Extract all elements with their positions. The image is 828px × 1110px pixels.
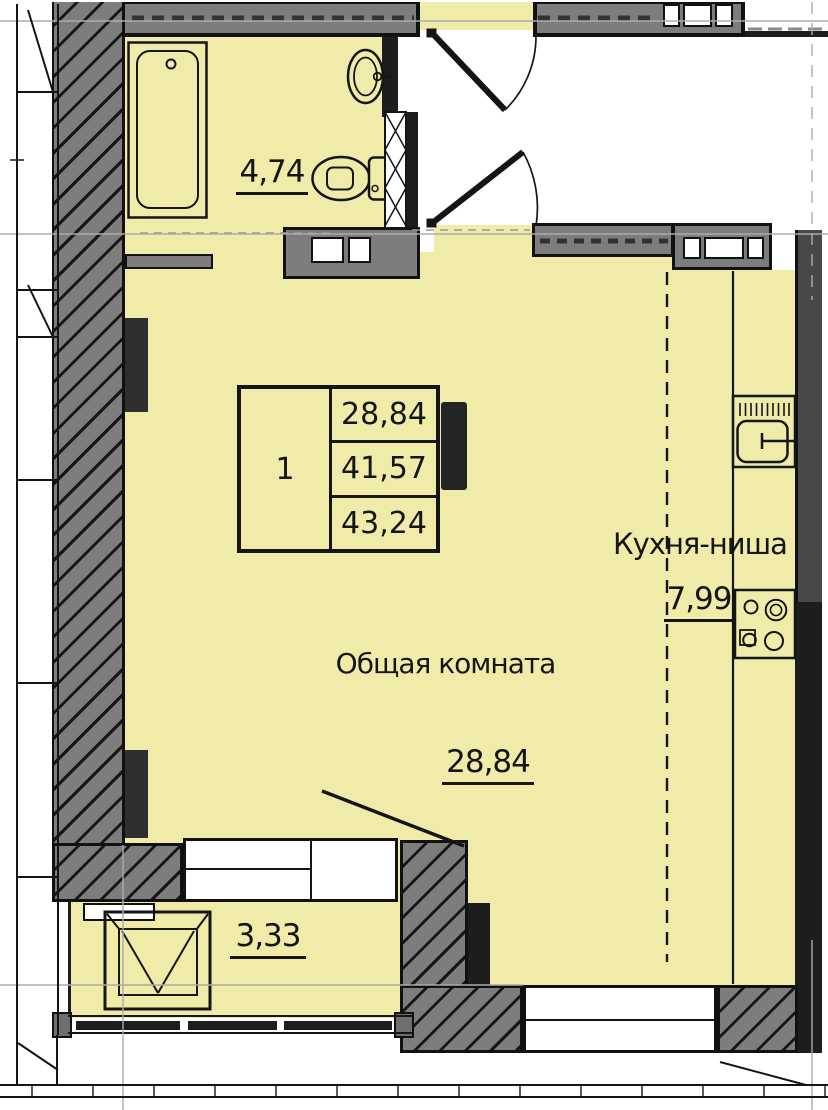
living-room-area-label: 28,84: [442, 746, 534, 785]
wall-window-block: [704, 237, 744, 259]
wall-corridor-bottom: [532, 223, 674, 257]
wall-top-window-block: [683, 4, 712, 27]
loggia-glazing-segment: [188, 1021, 277, 1030]
wall-top-left: [118, 2, 420, 37]
apartment-areas: 28,84 41,57 43,24: [332, 389, 436, 549]
loggia-glazing-segment: [76, 1021, 180, 1030]
apartment-number: 1: [241, 389, 332, 549]
radiator: [125, 318, 148, 412]
loggia-glazing-cap: [394, 1012, 414, 1038]
loggia-sill: [83, 903, 155, 921]
shaft-window-block: [311, 237, 344, 263]
kitchen-window: [523, 985, 717, 1053]
wardrobe-column: [441, 402, 467, 490]
floor-plan: 1 28,84 41,57 43,24 4,74 Кухня-ниша 7,99…: [0, 0, 828, 1110]
wall-kitchen-window-right-pier: [717, 985, 798, 1053]
wall-loggia-top: [52, 843, 183, 902]
wall-top-window-block: [663, 4, 680, 27]
loggia-glazing-segment: [284, 1021, 392, 1030]
wall-kitchen-window-left-pier: [400, 985, 523, 1053]
bathroom-area-label: 4,74: [236, 156, 308, 195]
living-area-value: 28,84: [332, 389, 436, 443]
loggia-left-edge: [68, 902, 71, 1018]
wall-top-right-edge: [745, 31, 828, 37]
balcony-door-window-unit: [183, 838, 398, 902]
wall-left-exterior: [52, 2, 125, 902]
total-area-value: 43,24: [332, 498, 436, 549]
wall-right-lower: [795, 602, 822, 1053]
loggia-area-label: 3,33: [230, 920, 306, 959]
wall-window-block: [683, 237, 701, 259]
apartment-area-value: 41,57: [332, 443, 436, 497]
wall-top-window-block: [715, 4, 733, 27]
wall-pier-dark: [468, 903, 490, 988]
kitchen-name-label: Кухня-ниша: [600, 529, 800, 559]
radiator: [125, 750, 148, 838]
apartment-info-table: 1 28,84 41,57 43,24: [237, 385, 440, 553]
upper-doorway-floor: [420, 2, 533, 30]
wall-window-block: [747, 237, 764, 259]
door-swing: [427, 152, 537, 227]
wall-top-right: [533, 2, 745, 37]
living-room-name-label: Общая комната: [318, 649, 573, 678]
wall-pier-window: [400, 840, 468, 988]
wall-bathroom-right: [382, 37, 398, 117]
wall-bathroom-bottom: [125, 254, 213, 269]
wall-corridor-left: [406, 112, 418, 230]
door-swing: [427, 29, 536, 110]
loggia-glazing-cap: [52, 1012, 72, 1038]
shaft-window-block: [348, 237, 371, 263]
kitchen-area-label: 7,99: [664, 583, 734, 622]
